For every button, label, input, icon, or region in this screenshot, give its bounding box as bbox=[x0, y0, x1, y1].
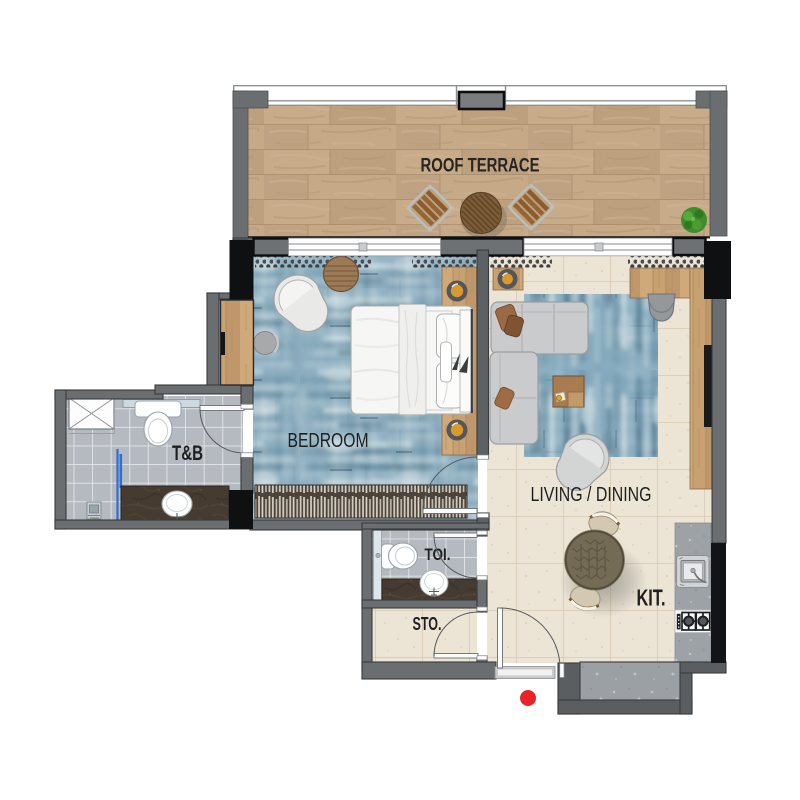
svg-text:ROOF TERRACE: ROOF TERRACE bbox=[421, 156, 540, 177]
svg-text:LIVING / DINING: LIVING / DINING bbox=[531, 484, 652, 506]
svg-text:KIT.: KIT. bbox=[637, 585, 666, 611]
svg-text:TOI.: TOI. bbox=[425, 546, 451, 564]
svg-text:T&B: T&B bbox=[172, 442, 203, 465]
svg-text:STO.: STO. bbox=[413, 614, 442, 634]
svg-text:BEDROOM: BEDROOM bbox=[288, 430, 369, 452]
